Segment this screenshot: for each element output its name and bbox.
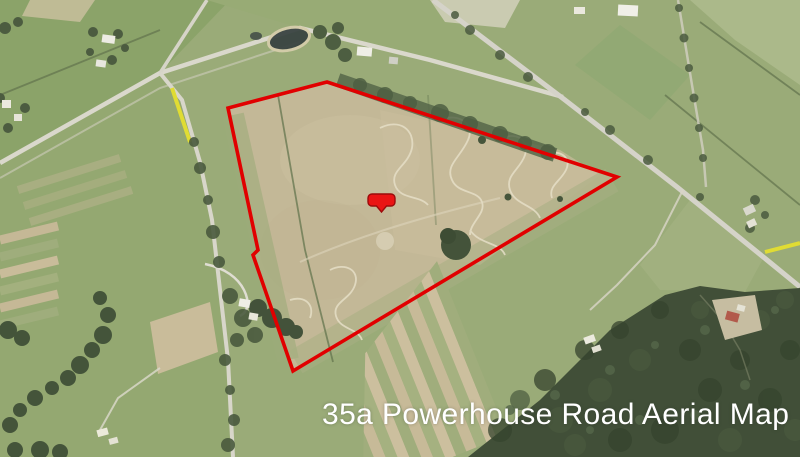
aerial-map-image: 35a Powerhouse Road Aerial Map — [0, 0, 800, 457]
map-caption: 35a Powerhouse Road Aerial Map — [322, 398, 782, 432]
aerial-photo — [0, 0, 800, 457]
